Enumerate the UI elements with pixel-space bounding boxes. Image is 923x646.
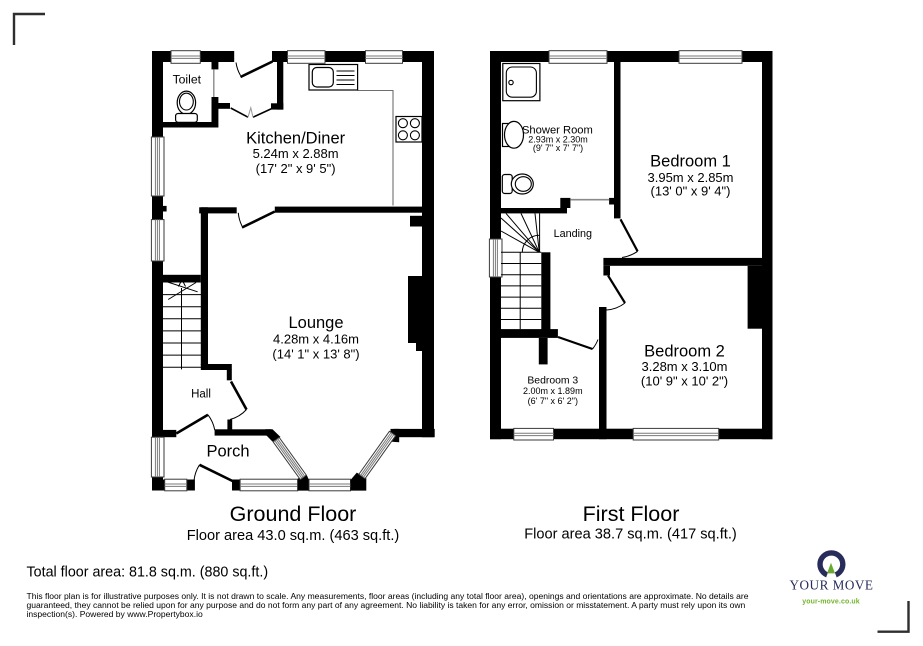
svg-text:3.28m x 3.10m: 3.28m x 3.10m: [642, 359, 728, 374]
svg-text:YOUR MOVE: YOUR MOVE: [790, 578, 874, 593]
svg-text:First Floor: First Floor: [583, 502, 680, 526]
svg-text:(17' 2" x 9' 5"): (17' 2" x 9' 5"): [256, 161, 336, 176]
svg-text:(10' 9" x 10' 2"): (10' 9" x 10' 2"): [641, 373, 728, 388]
svg-text:2.00m x 1.89m: 2.00m x 1.89m: [523, 386, 583, 396]
svg-text:Lounge: Lounge: [288, 314, 343, 332]
svg-text:Kitchen/Diner: Kitchen/Diner: [246, 130, 346, 148]
svg-text:Toilet: Toilet: [173, 73, 202, 87]
svg-text:(6' 7" x 6' 2"): (6' 7" x 6' 2"): [528, 396, 578, 406]
svg-text:Ground Floor: Ground Floor: [230, 502, 357, 526]
svg-text:Floor area 43.0 sq.m. (463 sq.: Floor area 43.0 sq.m. (463 sq.ft.): [187, 528, 400, 544]
svg-text:Floor area 38.7 sq.m. (417 sq.: Floor area 38.7 sq.m. (417 sq.ft.): [524, 527, 737, 543]
svg-text:(13' 0" x 9' 4"): (13' 0" x 9' 4"): [651, 184, 731, 199]
svg-text:(14' 1" x 13' 8"): (14' 1" x 13' 8"): [272, 347, 359, 362]
svg-text:your-move.co.uk: your-move.co.uk: [802, 599, 860, 606]
svg-text:Bedroom 2: Bedroom 2: [644, 342, 725, 360]
svg-text:(9' 7" x 7' 7"): (9' 7" x 7' 7"): [533, 143, 583, 153]
svg-text:Total floor area: 81.8 sq.m. (: Total floor area: 81.8 sq.m. (880 sq.ft.…: [27, 565, 269, 581]
svg-text:Landing: Landing: [554, 228, 592, 240]
svg-text:Bedroom 3: Bedroom 3: [527, 376, 578, 387]
svg-text:5.24m x 2.88m: 5.24m x 2.88m: [253, 146, 339, 161]
svg-text:4.28m x 4.16m: 4.28m x 4.16m: [273, 331, 359, 346]
svg-text:Porch: Porch: [206, 443, 249, 461]
svg-text:Bedroom 1: Bedroom 1: [650, 153, 731, 171]
svg-text:inspection(s). Powered by www.: inspection(s). Powered by www.Propertybo…: [27, 609, 203, 619]
svg-text:Hall: Hall: [191, 388, 211, 400]
